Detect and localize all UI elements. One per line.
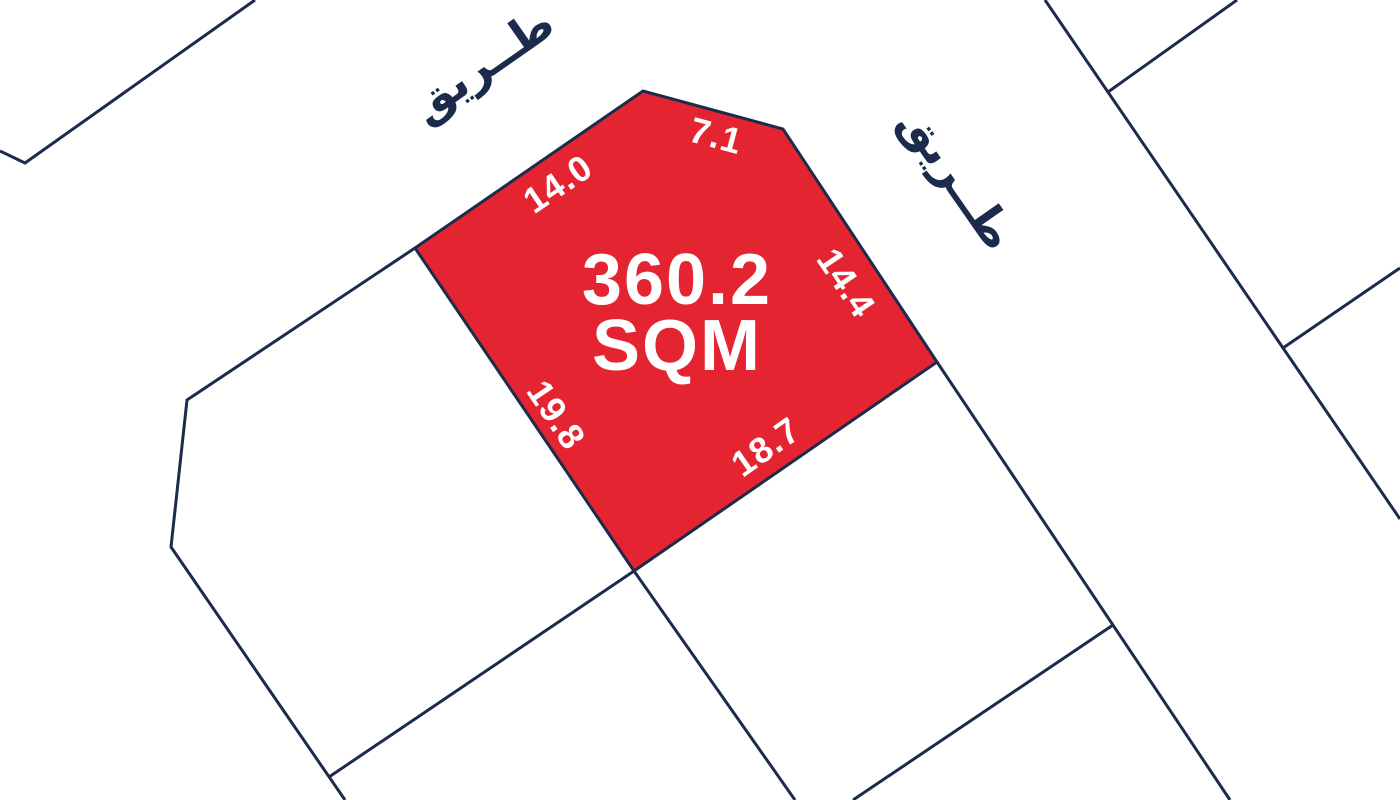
parcel-boundary-bottom-center xyxy=(634,571,795,800)
parcel-boundary-left xyxy=(171,248,415,800)
parcel-boundary-right-branch xyxy=(1283,268,1400,348)
plot-area-value: 360.2 xyxy=(582,247,772,313)
parcel-boundary-top-left xyxy=(0,0,255,163)
plot-area-unit: SQM xyxy=(582,313,772,379)
plot-map: طــريق طــريق 360.2 SQM 14.0 7.1 14.4 18… xyxy=(0,0,1400,800)
plot-area-label: 360.2 SQM xyxy=(582,247,772,379)
parcel-boundary-northeast xyxy=(1045,0,1400,519)
parcel-boundary-southeast xyxy=(937,362,1230,800)
parcel-boundary-bottom-left xyxy=(329,571,634,777)
parcel-boundary-top-right-branch xyxy=(1108,0,1237,92)
parcel-boundary-bottom-right-branch xyxy=(853,625,1113,800)
